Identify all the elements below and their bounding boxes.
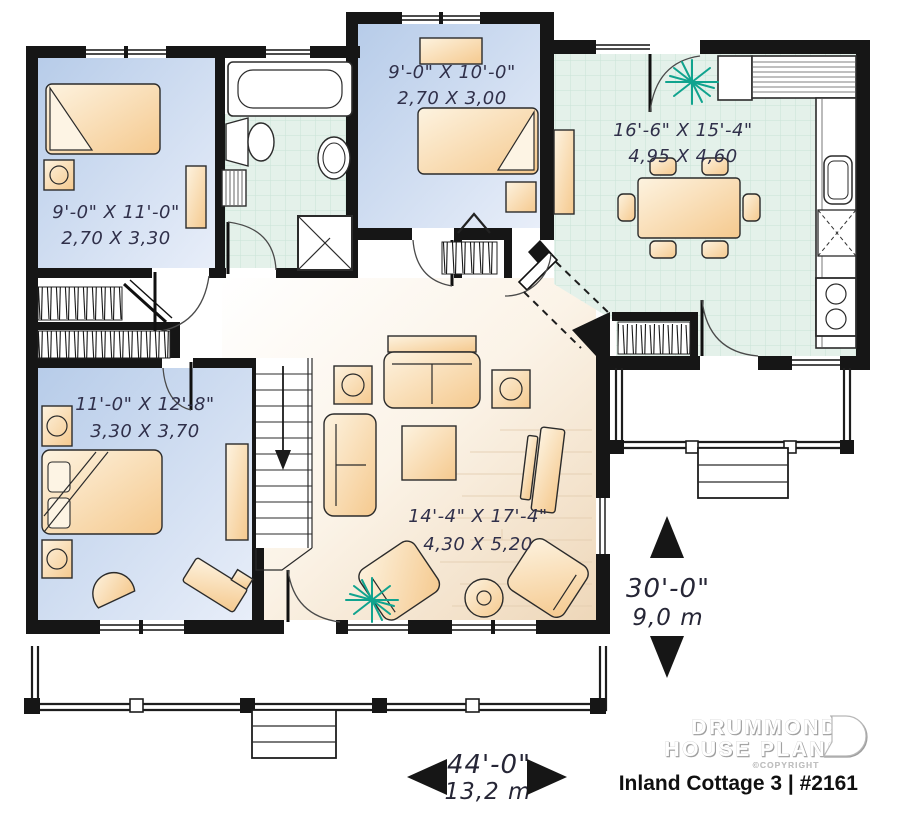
kitchen-sink-icon (824, 156, 852, 204)
porch-post (466, 699, 479, 712)
window-icon (348, 620, 408, 634)
brand-line1: DRUMMOND (691, 716, 838, 739)
window-icon (792, 356, 840, 370)
window-icon (266, 46, 310, 58)
porch-post (686, 441, 698, 453)
nightstand-icon (44, 160, 74, 190)
brand-copyright: ©COPYRIGHT (753, 760, 820, 770)
side-table-icon (334, 366, 372, 404)
dresser-icon (186, 166, 206, 228)
porch-post (590, 698, 606, 714)
window-icon (402, 12, 480, 24)
bed-icon (46, 84, 160, 154)
plan-title: Inland Cottage 3 | #2161 (619, 772, 859, 795)
kitchen-dining-dimensions-metric: 4,95 X 4,60 (628, 146, 737, 167)
dresser-icon (420, 38, 482, 64)
closet-hall (442, 242, 497, 274)
porch-post (24, 698, 40, 714)
bedroom-3-dimensions-metric: 3,30 X 3,70 (90, 421, 199, 442)
coffee-table-icon (402, 426, 456, 480)
window-icon (596, 498, 610, 554)
side-steps (698, 448, 788, 498)
width-metric: 13,2 m (445, 779, 532, 805)
bathtub-icon (228, 62, 352, 116)
loveseat-icon (324, 414, 376, 516)
window-icon (452, 620, 536, 634)
bed-icon (418, 108, 538, 174)
floor-plan-drawing: 9'-0" X 11'-0" 2,70 X 3,30 9'-0" X 10'-0… (0, 0, 900, 816)
width-imperial: 44'-0" (447, 750, 531, 780)
bedroom-1-dimensions-metric: 2,70 X 3,30 (61, 228, 170, 249)
depth-metric: 9,0 m (632, 605, 703, 631)
porch-post (372, 698, 387, 713)
front-steps (252, 710, 336, 758)
kitchen-counter-top (752, 56, 856, 98)
bathroom-cabinet-icon (222, 170, 246, 206)
staircase (256, 358, 312, 570)
round-table-icon (465, 579, 503, 617)
porch-post (130, 699, 143, 712)
bedroom-3-dimensions-imperial: 11'-0" X 12'-8" (75, 394, 214, 415)
console-table-icon (388, 336, 476, 352)
window-icon (100, 620, 184, 634)
bedroom-2-dimensions-imperial: 9'-0" X 10'-0" (388, 62, 515, 83)
sink-icon (318, 137, 350, 179)
corner-shower-icon (298, 216, 352, 270)
sideboard-icon (554, 130, 574, 214)
nightstand-icon (506, 182, 536, 212)
nightstand-icon (42, 406, 72, 446)
closet-bedroom-3 (38, 331, 170, 358)
kitchen-dining-dimensions-imperial: 16'-6" X 15'-4" (613, 120, 752, 141)
window-icon (86, 46, 166, 58)
bed-icon (42, 450, 162, 534)
porch-post (610, 440, 624, 454)
living-room-dimensions-imperial: 14'-4" X 17'-4" (408, 506, 547, 527)
sofa-icon (384, 352, 480, 408)
bedroom-1-dimensions-imperial: 9'-0" X 11'-0" (52, 202, 179, 223)
dishwasher-icon (818, 210, 856, 256)
wardrobe-icon (226, 444, 248, 540)
nightstand-icon (42, 540, 72, 578)
stove-icon (816, 278, 856, 336)
closet-entry (618, 322, 690, 354)
side-table-icon (492, 370, 530, 408)
floor-plan-page: 9'-0" X 11'-0" 2,70 X 3,30 9'-0" X 10'-0… (0, 0, 900, 816)
bedroom-2-dimensions-metric: 2,70 X 3,00 (397, 88, 506, 109)
brand-line2: HOUSE PLANS (664, 738, 843, 761)
living-room-dimensions-metric: 4,30 X 5,20 (423, 534, 532, 555)
fridge-icon (718, 56, 752, 100)
porch-post (840, 440, 854, 454)
depth-imperial: 30'-0" (626, 574, 710, 604)
